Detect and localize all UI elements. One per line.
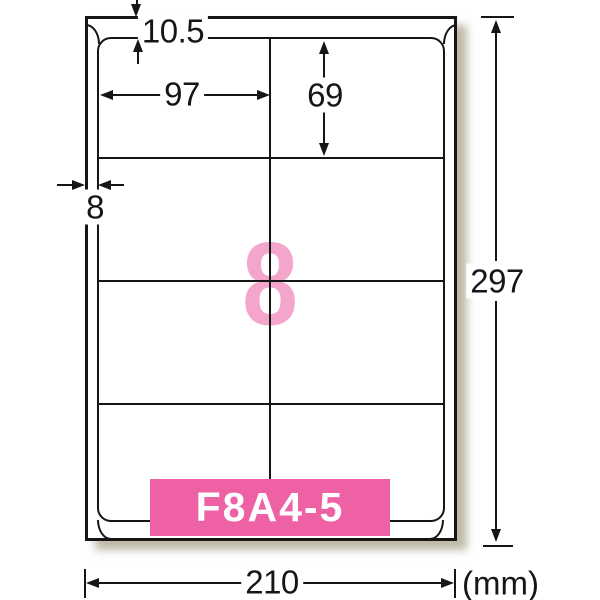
label-divider-horizontal-3 — [99, 403, 443, 405]
unit-label: (mm) — [462, 567, 539, 600]
arrow-right-icon — [441, 578, 454, 588]
label-divider-horizontal-2 — [99, 280, 443, 282]
label-sheet-diagram: 8 F8A4-5 10.5 97 69 8 297 210 (mm) — [0, 0, 600, 600]
arrow-down-icon — [491, 529, 501, 542]
label-height-value: 69 — [303, 78, 347, 113]
arrow-down-icon — [319, 143, 329, 156]
arrow-right-icon — [257, 90, 270, 100]
sheet-height-value: 297 — [466, 264, 528, 299]
sheet-width-value: 210 — [241, 565, 303, 600]
sheet-height-top-tick — [481, 16, 514, 18]
top-margin-value: 10.5 — [138, 14, 208, 49]
label-divider-vertical — [269, 39, 271, 480]
label-divider-horizontal-1 — [99, 157, 443, 159]
product-code-text: F8A4-5 — [196, 487, 345, 528]
product-code-badge: F8A4-5 — [150, 479, 390, 536]
sheet-height-dimension-line-upper — [495, 32, 497, 261]
sheet-height-bottom-tick — [483, 545, 513, 547]
side-margin-outer-arrow-stem — [57, 184, 73, 186]
top-margin-lower-arrow-stem — [137, 51, 139, 64]
label-width-value: 97 — [160, 77, 204, 112]
arrow-right-icon — [72, 180, 85, 190]
sheet-height-dimension-line-lower — [495, 301, 497, 530]
side-margin-inner-arrow-stem — [110, 184, 124, 186]
side-margin-value: 8 — [82, 190, 108, 225]
sheet-width-right-tick — [454, 569, 456, 598]
